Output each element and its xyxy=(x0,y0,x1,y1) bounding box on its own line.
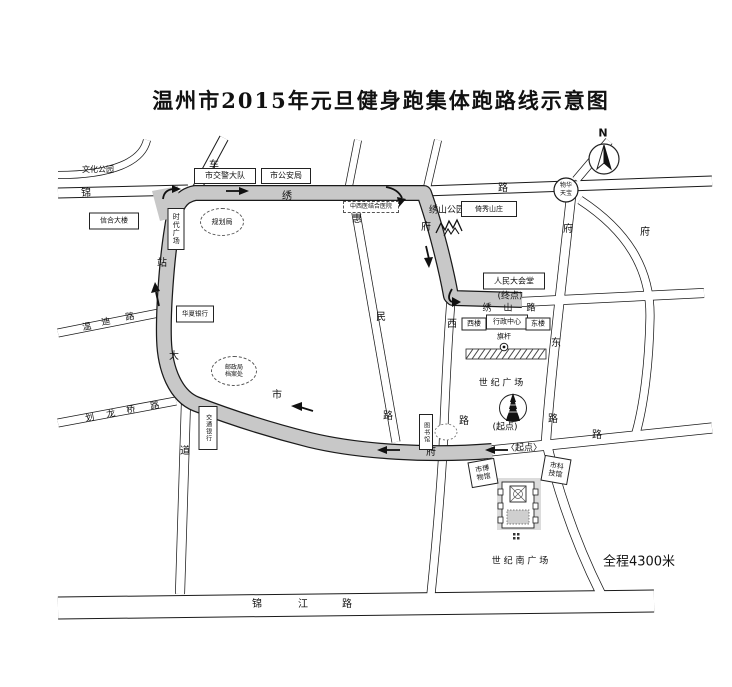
hualongqiao-lu-char-4: 路 xyxy=(150,402,160,412)
box-line: 图书馆 xyxy=(422,422,429,443)
south-monument xyxy=(497,478,541,540)
culture-park-label: 文化公园 xyxy=(82,166,114,174)
chezhan-dadao-char-4: 道 xyxy=(180,447,190,457)
flagpole-label: 旗杆 xyxy=(497,334,511,341)
box-line: 天宝 xyxy=(560,190,572,198)
fuxi-lu-char-2: 西 xyxy=(447,320,457,330)
box-line: 市公安局 xyxy=(270,171,302,181)
science-museum-box: 市科技馆 xyxy=(540,455,571,485)
map-title: 温州市2015年元旦健身跑集体跑路线示意图 xyxy=(152,85,609,115)
box-line: 倚秀山庄 xyxy=(475,205,503,213)
finish-point-label: (终点) xyxy=(497,293,522,302)
compass-n-label: N xyxy=(598,128,607,139)
great-hall-box: 人民大会堂 xyxy=(483,273,545,290)
west-building-box: 西楼 xyxy=(462,318,487,331)
fudong-lu-char-2: 东 xyxy=(551,339,561,349)
fudong-lu-char-1: 府 xyxy=(563,225,573,235)
wendi-lu-char-3: 路 xyxy=(125,313,135,323)
museum-box: 市博物馆 xyxy=(467,458,498,488)
wendi-lu-char-2: 迪 xyxy=(101,318,111,328)
hualongqiao-lu-char-2: 龙 xyxy=(106,410,116,420)
yixiu-villa-box: 倚秀山庄 xyxy=(461,201,517,217)
box-line: 技馆 xyxy=(548,469,563,480)
start-point-label-2: 〈起点〉 xyxy=(506,445,542,454)
huimin-lu-char-1: 惠 xyxy=(352,215,362,225)
jinxiu-lu-char-1: 锦 xyxy=(81,189,91,199)
hualongqiao-lu-char-1: 划 xyxy=(85,414,95,424)
hospital-box: 中西医结合医院 xyxy=(343,201,399,213)
box-line: 物华 xyxy=(560,182,572,190)
box-line: 物馆 xyxy=(476,472,491,483)
fudong-lu-char-3: 路 xyxy=(548,415,558,425)
admin-center-box: 行政中心 xyxy=(486,315,528,330)
total-distance-label: 全程4300米 xyxy=(603,556,675,569)
huimin-lu-char-3: 路 xyxy=(383,412,393,422)
fuxi-lu-char-3: 路 xyxy=(459,417,469,427)
chezhan-dadao-char-3: 大 xyxy=(169,352,179,362)
small-dashed-ellipse xyxy=(435,424,457,440)
jinjiang-lu-char-1: 锦 xyxy=(252,600,262,610)
east-road-char: 府 xyxy=(640,228,650,238)
xiushan-lu-char-2: 山 xyxy=(503,305,512,314)
planning-bureau-ellipse: 规划局 xyxy=(200,208,244,236)
shifu-lu-char-3: 路 xyxy=(592,431,602,441)
wendi-lu-char-1: 温 xyxy=(82,323,92,333)
shifu-lu-char-1: 市 xyxy=(272,391,282,401)
chezhan-dadao-char-2: 站 xyxy=(157,259,167,269)
library-box: 图书馆 xyxy=(419,414,433,450)
xiushan-lu-char-3: 路 xyxy=(526,305,535,314)
mountain-icon-2 xyxy=(444,228,459,236)
huaxia-bank-box: 华夏银行 xyxy=(176,306,214,323)
east-building-box: 东楼 xyxy=(526,318,551,331)
compass-icon xyxy=(589,144,619,174)
fuxi-lu-char-1: 府 xyxy=(421,223,431,233)
century-south-square-label: 世 纪 南 广 场 xyxy=(492,558,548,567)
times-square-box: 时代广场 xyxy=(168,208,185,250)
jinxiu-lu-char-2: 绣 xyxy=(282,192,292,202)
hualongqiao-lu-char-3: 桥 xyxy=(126,406,136,416)
traffic-police-box: 市交警大队 xyxy=(194,168,256,184)
route-map: 温州市2015年元旦健身跑集体跑路线示意图 文化公园车锦绣路站大道温迪路划龙桥路… xyxy=(0,0,732,687)
box-line: 人民大会堂 xyxy=(494,276,534,286)
flagpole-dot-icon xyxy=(503,346,506,349)
start-point-label-1: (起点) xyxy=(492,424,517,433)
post-archive-ellipse: 邮政局档案处 xyxy=(211,356,257,386)
roundabout-label: 物华天宝 xyxy=(554,180,578,200)
box-line: 华夏银行 xyxy=(182,310,208,318)
arrow-south-fuxi xyxy=(426,246,429,259)
century-square-label: 世 纪 广 场 xyxy=(479,380,524,389)
xinhe-building-box: 信合大楼 xyxy=(89,213,139,230)
xiushan-park-label: 绣山公园 xyxy=(429,207,465,216)
box-line: 规划局 xyxy=(212,218,233,226)
box-line: 信合大楼 xyxy=(100,217,128,225)
huimin-lu-char-2: 民 xyxy=(376,313,386,323)
box-line: 交通银行 xyxy=(204,414,211,442)
box-line: 时代广场 xyxy=(172,213,180,245)
public-security-box: 市公安局 xyxy=(261,168,311,184)
jinjiang-lu-char-2: 江 xyxy=(298,600,308,610)
box-line: 行政中心 xyxy=(493,318,521,326)
box-line: 市交警大队 xyxy=(205,171,245,181)
jinxiu-lu-char-3: 路 xyxy=(498,184,508,194)
box-line: 邮政局 xyxy=(225,364,243,371)
jiaotong-bank-box: 交通银行 xyxy=(199,406,218,450)
box-line: 东楼 xyxy=(531,320,545,328)
box-line: 中西医结合医院 xyxy=(350,203,392,210)
jinjiang-lu-char-3: 路 xyxy=(342,600,352,610)
box-line: 档案处 xyxy=(225,371,243,378)
box-line: 西楼 xyxy=(467,320,481,328)
monument-lower xyxy=(507,510,529,524)
xiushan-lu-char-1: 绣 xyxy=(482,305,491,314)
